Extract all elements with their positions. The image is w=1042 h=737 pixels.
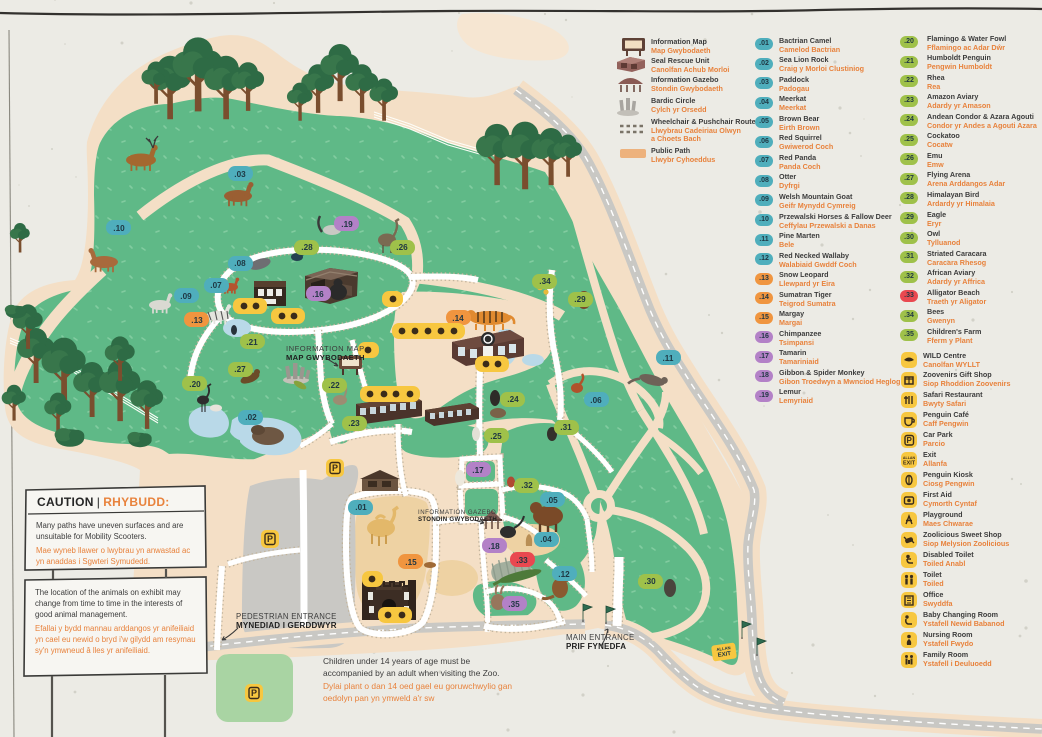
svg-text:.13: .13 [191, 316, 203, 325]
svg-text:.10: .10 [113, 224, 125, 233]
svg-text:.33: .33 [516, 556, 528, 565]
svg-text:.25: .25 [490, 432, 502, 441]
svg-text:.04: .04 [540, 535, 552, 544]
svg-text:ALLAN: ALLAN [903, 456, 916, 460]
svg-text:.23: .23 [348, 419, 360, 428]
svg-text:.06: .06 [590, 396, 602, 405]
svg-text:P: P [267, 534, 273, 544]
svg-text:.22: .22 [328, 381, 340, 390]
svg-text:P: P [332, 463, 338, 473]
svg-text:.11: .11 [663, 354, 674, 363]
svg-text:.31: .31 [560, 423, 572, 432]
svg-text:.08: .08 [234, 259, 246, 268]
svg-text:.27: .27 [234, 365, 246, 374]
svg-text:P: P [251, 688, 257, 698]
svg-text:.12: .12 [558, 570, 570, 579]
svg-text:.19: .19 [341, 220, 353, 229]
svg-text:.35: .35 [508, 600, 520, 609]
svg-text:.14: .14 [452, 314, 464, 323]
svg-text:.01: .01 [355, 503, 367, 512]
svg-text:.32: .32 [521, 481, 533, 490]
svg-text:.03: .03 [234, 170, 246, 179]
svg-text:.28: .28 [301, 243, 313, 252]
svg-text:.18: .18 [488, 542, 500, 551]
svg-text:.05: .05 [546, 496, 558, 505]
svg-text:P: P [907, 436, 913, 445]
svg-text:EXIT: EXIT [903, 460, 916, 466]
svg-text:.17: .17 [472, 466, 484, 475]
svg-text:.02: .02 [245, 413, 257, 422]
svg-text:.26: .26 [396, 243, 408, 252]
svg-text:.15: .15 [405, 558, 417, 567]
svg-text:.21: .21 [246, 338, 258, 347]
svg-text:.20: .20 [189, 380, 201, 389]
svg-text:.16: .16 [312, 290, 324, 299]
svg-text:.07: .07 [210, 281, 222, 290]
svg-text:.29: .29 [574, 295, 586, 304]
svg-text:.30: .30 [644, 577, 656, 586]
svg-text:.09: .09 [180, 292, 192, 301]
svg-text:.34: .34 [539, 277, 551, 286]
svg-text:.24: .24 [507, 395, 519, 404]
